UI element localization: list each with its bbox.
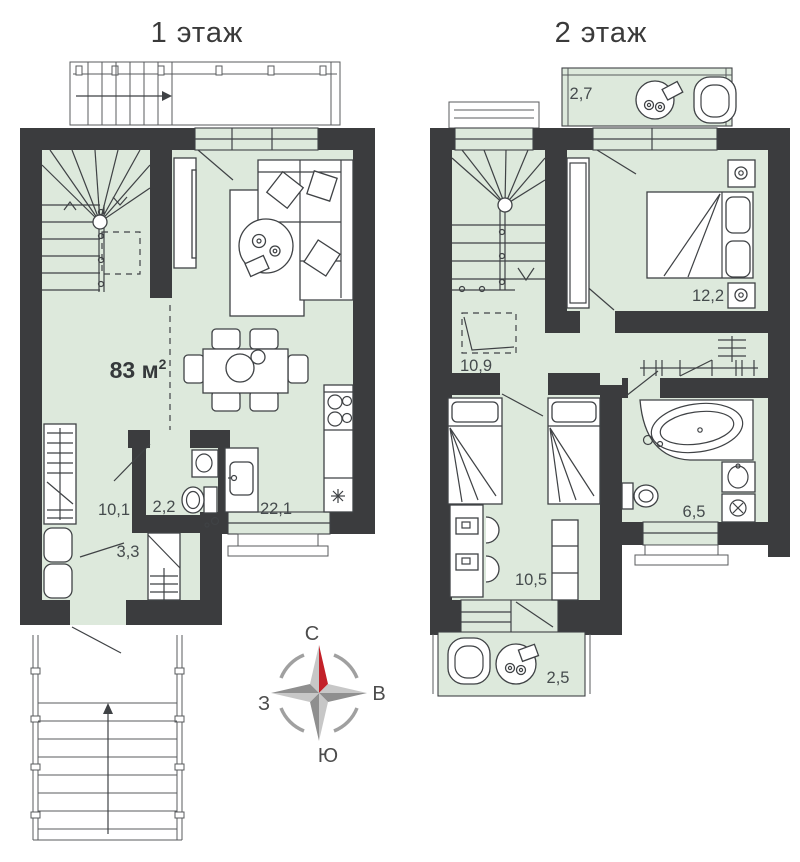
- chair-icon: [250, 329, 278, 349]
- entrance-doorway: [70, 600, 126, 625]
- desk: [450, 505, 483, 597]
- monitor-icon: [456, 518, 478, 534]
- area-kitchen-living: 22,1: [260, 500, 292, 518]
- single-bed: [548, 398, 600, 504]
- area-hallway: 10,1: [98, 501, 130, 519]
- area-balcony-bottom: 2,5: [547, 669, 570, 687]
- entrance-porch-stairs: [31, 635, 184, 840]
- area-storage: 3,3: [117, 543, 140, 561]
- chair-icon: [250, 391, 278, 411]
- kitchen-island: [225, 448, 258, 512]
- compass-east-label: В: [372, 683, 385, 705]
- balcony-armchair: [694, 77, 736, 123]
- total-area-label: 83 м2: [110, 356, 167, 383]
- floor1-kitchen-window: [228, 512, 330, 556]
- compass-rose: С В З Ю: [258, 623, 386, 767]
- area-bathroom: 6,5: [683, 503, 706, 521]
- pillow-icon: [452, 402, 498, 422]
- kids-balcony-door-window: [461, 600, 558, 635]
- area-hall: 10,9: [460, 357, 492, 375]
- compass-south-label: Ю: [318, 745, 338, 767]
- tv-icon: [192, 170, 196, 258]
- area-wc: 2,2: [153, 498, 176, 516]
- washing-machine-icon: [722, 494, 755, 522]
- kitchen-counter: [324, 385, 353, 512]
- toilet-icon: [622, 483, 658, 509]
- fridge-icon: [331, 489, 345, 503]
- floorplan: 1 этаж 2 этаж: [0, 0, 800, 862]
- kids-wardrobe: [552, 520, 578, 600]
- bathroom-window: [635, 522, 728, 565]
- nightstand: [728, 160, 755, 187]
- nightstand: [728, 283, 755, 308]
- pillow-icon: [726, 197, 750, 233]
- washbasin-icon: [722, 462, 755, 492]
- stairwell-window: [455, 128, 533, 150]
- area-bedroom: 12,2: [692, 287, 724, 305]
- compass-star: [271, 645, 367, 741]
- hall-wardrobe: [44, 424, 76, 524]
- chair-icon: [212, 329, 240, 349]
- floor1-title: 1 этаж: [151, 17, 244, 49]
- stair-window-bay: [449, 102, 539, 128]
- chair-icon: [212, 391, 240, 411]
- floor1-terrace: [70, 62, 340, 125]
- single-bed: [448, 398, 502, 504]
- bedroom-wardrobe: [567, 158, 589, 308]
- entrance-door-leaf: [72, 627, 121, 653]
- chair-icon: [184, 355, 204, 383]
- compass-north-label: С: [305, 623, 319, 645]
- sink-icon: [230, 462, 253, 495]
- floor2-plan: 2,7 12,2 10,9 10,5 6,5 2,5: [430, 68, 790, 696]
- toilet-icon: [204, 487, 217, 513]
- floorplan-canvas: 1 этаж 2 этаж: [0, 0, 800, 862]
- pillow-icon: [552, 402, 596, 422]
- area-kids-room: 10,5: [515, 571, 547, 589]
- chair-icon: [288, 355, 308, 383]
- balcony-armchair: [448, 638, 490, 684]
- storage-closet: [148, 533, 180, 600]
- pillow-icon: [726, 241, 750, 277]
- compass-west-label: З: [258, 693, 270, 715]
- double-bed: [647, 192, 753, 278]
- monitor-icon: [456, 554, 478, 570]
- porch-direction-arrow: [103, 703, 113, 834]
- tv-console: [174, 158, 196, 268]
- floor2-title: 2 этаж: [555, 17, 648, 49]
- area-balcony-top: 2,7: [570, 85, 593, 103]
